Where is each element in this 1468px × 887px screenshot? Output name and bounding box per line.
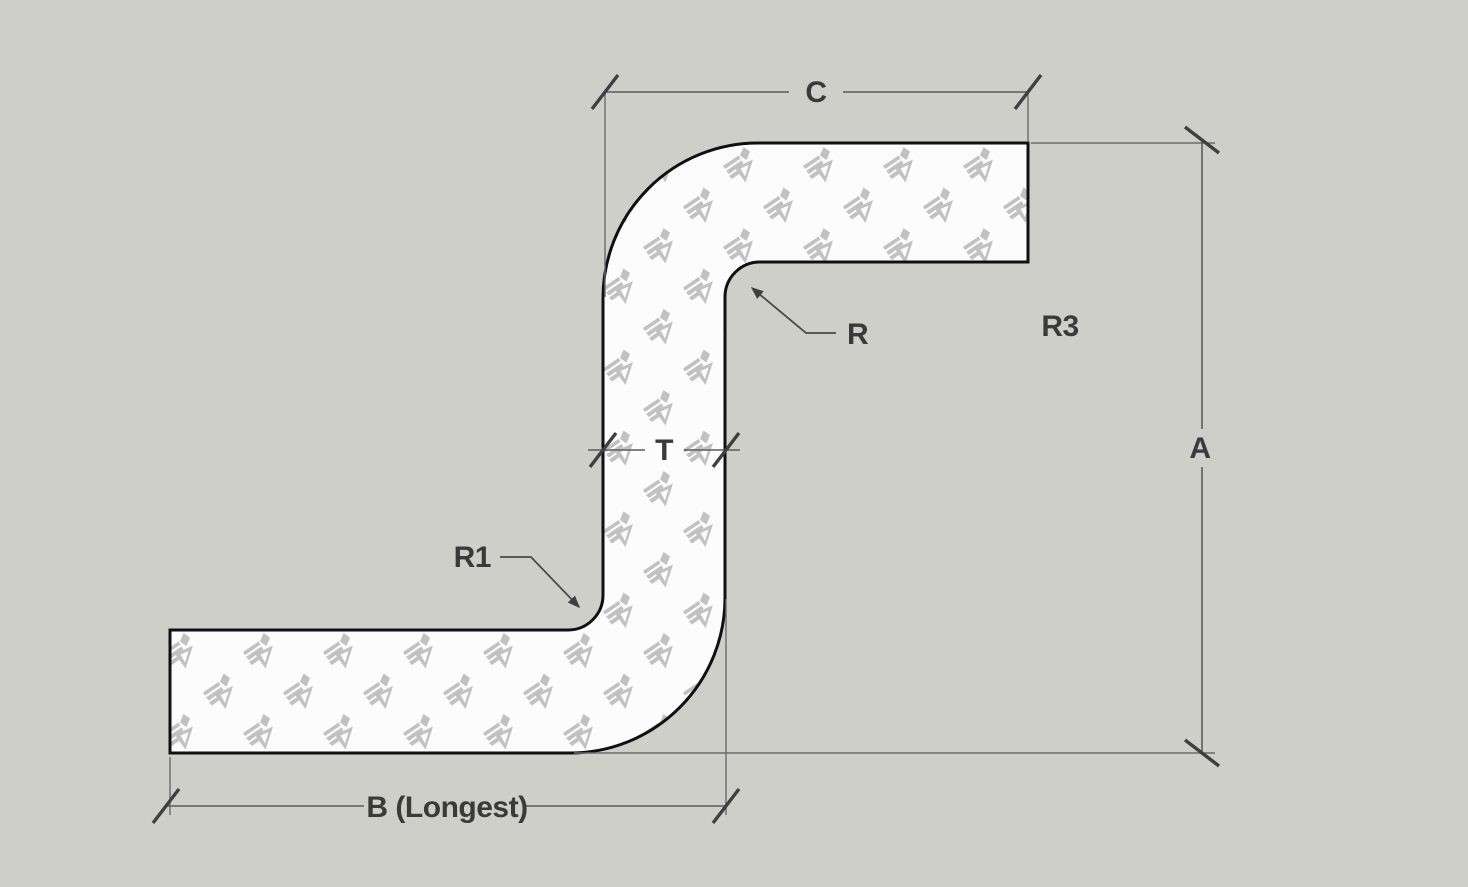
dimension-b-label: B (Longest) xyxy=(366,791,527,824)
diagram-canvas: C A B (Longest) T xyxy=(0,0,1468,887)
dimension-c-label: C xyxy=(805,76,826,109)
radius-r3-label: R3 xyxy=(1041,310,1078,343)
dimension-t-label: T xyxy=(655,434,673,467)
callout-r3: R3 xyxy=(1041,310,1078,343)
radius-r1-label: R1 xyxy=(454,541,491,574)
radius-r-label: R xyxy=(847,318,869,351)
dimension-a-label: A xyxy=(1189,432,1210,465)
z-profile-dimension-drawing: C A B (Longest) T xyxy=(0,0,1468,887)
